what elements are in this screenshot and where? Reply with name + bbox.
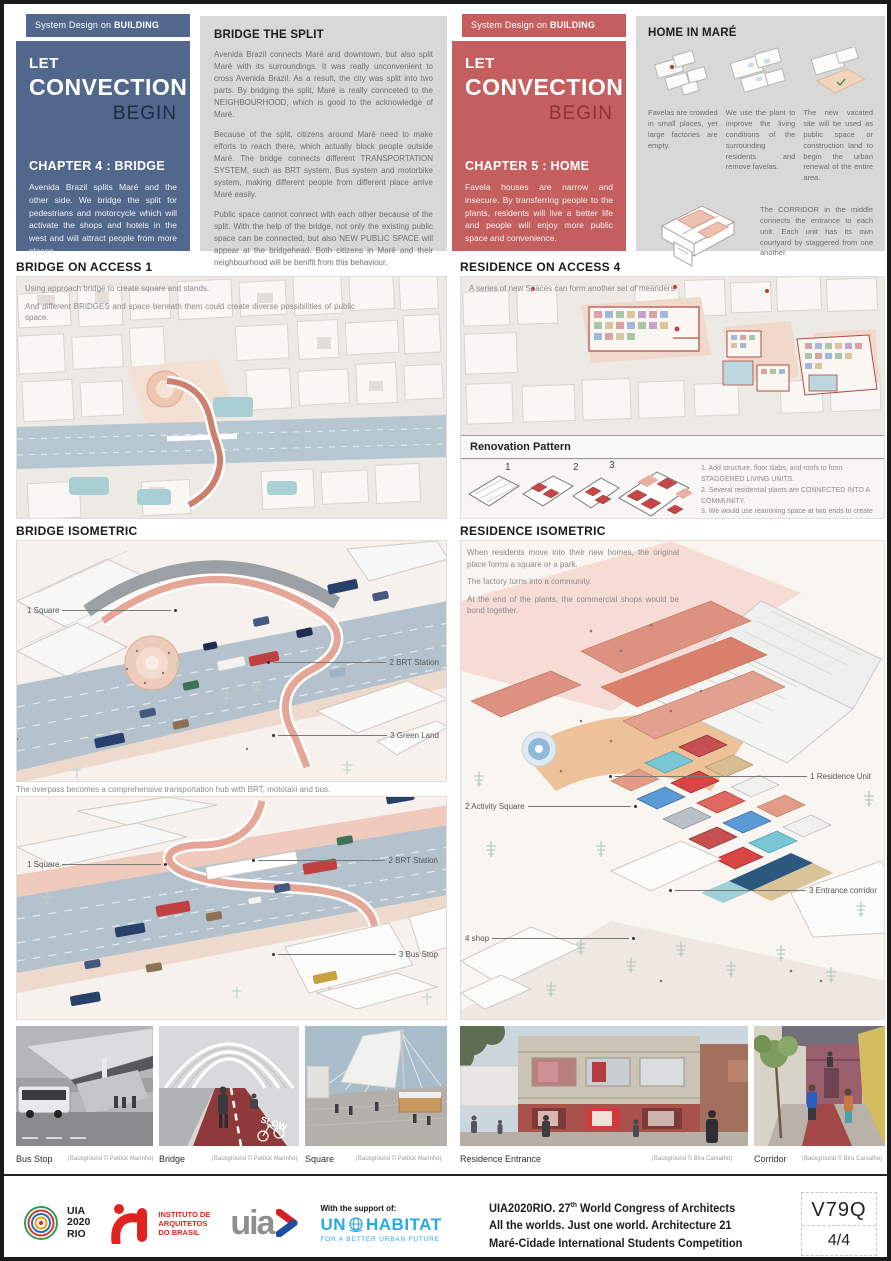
congress-line1: UIA2020RIO. 27th World Congress of Archi… — [489, 1201, 742, 1218]
caption-bridge: Bridge — [159, 1154, 185, 1164]
footer-logos: UIA 2020 RIO INSTITUTO DE ARQUITETOS DO … — [22, 1194, 442, 1252]
congress-line2: All the worlds. Just one world. Architec… — [489, 1218, 742, 1235]
photo-bus-stop — [16, 1026, 153, 1146]
residence-access-line1: A series of new Spaces can form another … — [469, 283, 769, 295]
bridge-access-map: Using approach bridge to create square a… — [16, 276, 447, 519]
residence-access-map: A series of new Spaces can form another … — [460, 276, 885, 519]
renovation-step-2: 2 — [573, 462, 579, 473]
res-label-shop: 4 shop — [465, 933, 635, 943]
chapter5-title: CHAPTER 5 : HOME — [465, 159, 613, 173]
photo-corridor — [754, 1026, 885, 1146]
congress-text: UIA2020RIO. 27th World Congress of Archi… — [489, 1201, 742, 1253]
iab-line3: DO BRASIL — [158, 1228, 210, 1237]
renovation-pattern-title: Renovation Pattern — [461, 435, 884, 459]
congress-line3: Maré-Cidade International Students Compe… — [489, 1236, 742, 1253]
favela-marker — [670, 65, 674, 69]
residence-access-notes: A series of new Spaces can form another … — [469, 283, 769, 301]
uia2020rio-logo: UIA 2020 RIO — [22, 1204, 90, 1242]
uia2020-rings-icon — [22, 1204, 60, 1242]
hero-convection: CONVECTION — [465, 74, 613, 101]
renovation-step-3: 3 — [609, 460, 615, 471]
band-prefix: System Design on — [471, 20, 550, 30]
iso1-label-greenland: 3 Green Land — [272, 730, 439, 740]
bridge-split-p2: Because of the split, citizens around Ma… — [214, 129, 433, 201]
credit-bridge: (Background © Patrick Marinho) — [212, 1156, 297, 1162]
res-label-entrance-corridor: 3 Entrance corridor — [669, 885, 877, 895]
residence-isometric-title: RESIDENCE ISOMETRIC — [460, 524, 606, 538]
renovation-notes: 1. Add structure, floor slabs, and roofs… — [701, 464, 881, 519]
renovation-step-1: 1 — [505, 462, 511, 473]
renovation-note-2: 2. Several residential plants are CONNEC… — [701, 486, 881, 508]
favela-cluster-diagram — [648, 47, 714, 99]
res-label-residence-unit: 1 Residence Unit — [609, 771, 871, 781]
bridge-split-p1: Avenida Brazil connects Maré and downtow… — [214, 49, 433, 121]
hero-convection: CONVECTION — [29, 74, 177, 101]
photo-bridge: SLOW — [159, 1026, 299, 1146]
entry-code-box: V79Q 4/4 — [801, 1192, 877, 1256]
renovated-cluster-3 — [797, 335, 877, 395]
bridge-access-line2: And different BRIDGES and space beneath … — [25, 301, 355, 324]
bridge-isometric-title: BRIDGE ISOMETRIC — [16, 524, 137, 538]
credit-residence-entrance: (Background © Bira Carvalho) — [652, 1156, 732, 1162]
bridge-isometric-view1: 1 Square 2 BRT Station 3 Green Land — [16, 540, 447, 782]
uia2020-line3: RIO — [67, 1229, 90, 1240]
home-step-2: We use the plant to improve the living c… — [726, 47, 796, 184]
chapter4-text: Avenida Brazil splits Maré and the other… — [29, 181, 177, 258]
bridge-access-notes: Using approach bridge to create square a… — [25, 283, 355, 330]
iab-glyph-icon — [110, 1202, 152, 1244]
bridge-isometric-view2: 1 Square 2 BRT Station 3 Bus Stop — [16, 796, 447, 1020]
right-series-band: System Design on BUILDING SCALE — [462, 14, 626, 37]
plant-reuse-diagram — [726, 47, 792, 99]
iab-line2: ARQUITETOS — [158, 1219, 210, 1228]
market-stalls — [399, 1096, 441, 1112]
caption-residence-entrance: Residence Entrance — [460, 1154, 541, 1164]
entry-code: V79Q — [802, 1193, 876, 1225]
residence-iso-p1: When residents move into their new homes… — [467, 547, 679, 570]
bridge-access-title: BRIDGE ON ACCESS 1 — [16, 260, 152, 274]
bridge-the-split-box: BRIDGE THE SPLIT Avenida Brazil connects… — [200, 16, 447, 251]
renovated-cluster-grid — [589, 307, 699, 351]
iso1-label-brt: 2 BRT Station — [267, 657, 439, 667]
bridge-split-title: BRIDGE THE SPLIT — [214, 29, 433, 41]
un-globe-icon — [348, 1217, 364, 1233]
credit-bus-stop: (Background © Patrick Marinho) — [68, 1156, 153, 1162]
unhabitat-logo: With the support of: UN HABITAT FOR A BE… — [320, 1204, 441, 1243]
renovation-pattern-area: 1 2 3 1. Add structure, floor slabs, and… — [461, 460, 884, 519]
caption-corridor: Corridor — [754, 1154, 787, 1164]
chapter5-text: Favela houses are narrow and insecure. B… — [465, 181, 613, 245]
home-corridor-note: The CORRIDOR in the middle connects the … — [760, 205, 873, 259]
home-in-mare-title: HOME IN MARÉ — [648, 27, 873, 39]
iso2-label-brt: 2 BRT Station — [252, 855, 438, 865]
iab-logo: INSTITUTO DE ARQUITETOS DO BRASIL — [110, 1202, 210, 1244]
uia-wordmark: uia — [230, 1206, 273, 1240]
bridge-iso2-drawing — [17, 797, 447, 1020]
iso2-label-busstop: 3 Bus Stop — [272, 949, 438, 959]
chapter4-hero: LET CONVECTION BEGIN CHAPTER 4 : BRIDGE … — [16, 41, 190, 251]
residence-iso-p2: The factory turns into a community. — [467, 576, 679, 588]
credit-square: (Background © Patrick Marinho) — [356, 1156, 441, 1162]
renovation-note-3: 3. We would use reamining space at two e… — [701, 507, 881, 519]
hero-begin: BEGIN — [465, 103, 613, 125]
photo-square — [305, 1026, 447, 1146]
hero-let: LET — [29, 55, 177, 72]
renovation-note-1: 1. Add structure, floor slabs, and roofs… — [701, 464, 881, 486]
home-cap-3: The new vacated site will be used as pub… — [803, 108, 873, 184]
unhabitat-tagline: FOR A BETTER URBAN FUTURE — [320, 1236, 441, 1243]
hero-begin: BEGIN — [29, 103, 177, 125]
uia-logo: uia — [230, 1206, 300, 1240]
chapter4-title: CHAPTER 4 : BRIDGE — [29, 159, 177, 173]
uia-chevron-icon — [276, 1209, 300, 1237]
bridge-access-line1: Using approach bridge to create square a… — [25, 283, 355, 295]
residence-isometric-view: When residents move into their new homes… — [460, 540, 885, 1020]
uia2020-line2: 2020 — [67, 1217, 90, 1228]
corridor-unit-diagram — [648, 190, 752, 274]
aerial-map-residence — [461, 277, 885, 435]
bridge-split-p3: Public space cannot connect with each ot… — [214, 209, 433, 269]
un-text: UN — [320, 1215, 346, 1235]
home-cap-1: Favelas are crowded in small places, yet… — [648, 108, 718, 152]
residence-iso-notes: When residents move into their new homes… — [467, 547, 679, 623]
iab-line1: INSTITUTO DE — [158, 1210, 210, 1219]
res-label-activity-square: 2 Activity Square — [465, 801, 637, 811]
bridge-iso-caption: The overpass becomes a comprehensive tra… — [16, 785, 440, 794]
page-number: 4/4 — [802, 1225, 876, 1250]
hero-let: LET — [465, 55, 613, 72]
habitat-text: HABITAT — [366, 1215, 442, 1235]
iso1-label-square: 1 Square — [27, 605, 177, 615]
caption-square: Square — [305, 1154, 334, 1164]
home-step-3: The new vacated site will be used as pub… — [803, 47, 873, 184]
vacated-site-diagram — [803, 47, 869, 99]
home-in-mare-box: HOME IN MARÉ Favelas are crowded in smal… — [636, 16, 885, 251]
caption-bus-stop: Bus Stop — [16, 1154, 53, 1164]
chapter5-hero: LET CONVECTION BEGIN CHAPTER 5 : HOME Fa… — [452, 41, 626, 251]
iso2-label-square: 1 Square — [27, 859, 167, 869]
credit-corridor: (Background © Bira Carvalho) — [802, 1156, 882, 1162]
competition-poster: System Design on BUILDING SCALE LET CONV… — [0, 0, 891, 1261]
home-step-1: Favelas are crowded in small places, yet… — [648, 47, 718, 184]
support-text: With the support of: — [320, 1204, 441, 1213]
home-cap-2: We use the plant to improve the living c… — [726, 108, 796, 173]
photo-residence-entrance — [460, 1026, 748, 1146]
residence-access-title: RESIDENCE ON ACCESS 4 — [460, 260, 621, 274]
band-prefix: System Design on — [35, 20, 114, 30]
left-series-band: System Design on BUILDING SCALE — [26, 14, 190, 37]
footer-divider — [4, 1174, 887, 1176]
residence-iso-p3: At the end of the plants, the commercial… — [467, 594, 679, 617]
